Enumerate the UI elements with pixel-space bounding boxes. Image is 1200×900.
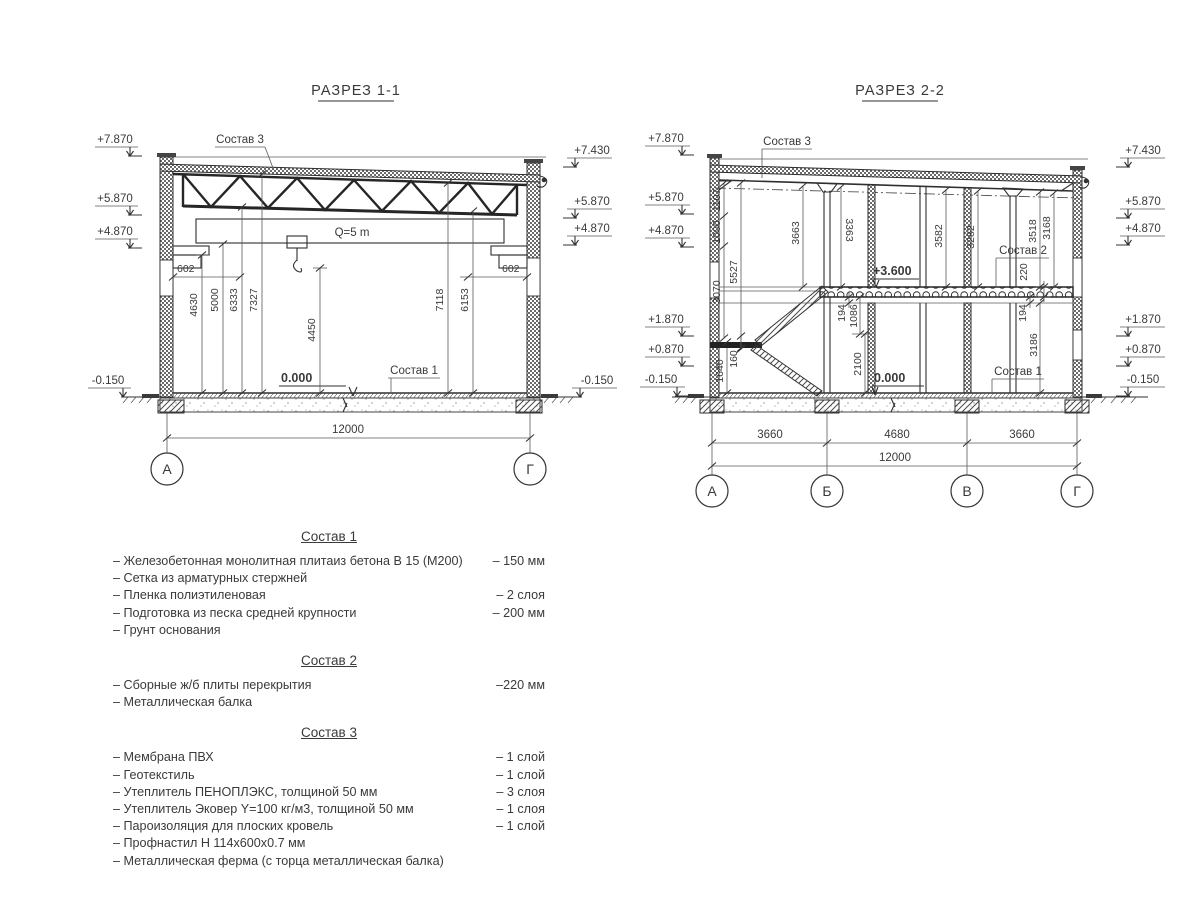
- dim-label: 602: [177, 263, 195, 275]
- elevation-label: -0.150: [92, 375, 125, 387]
- dim-label: 160: [728, 350, 740, 368]
- item-name: – Сборные ж/б плиты перекрытия: [113, 677, 312, 694]
- axis-label: Г: [1073, 483, 1081, 499]
- elevation-label: +1.870: [1125, 314, 1161, 326]
- elevation-label: +7.870: [97, 134, 133, 146]
- dim-label: 194: [836, 304, 848, 322]
- elevation-label: +7.430: [574, 145, 610, 157]
- dim-label: 3186: [1028, 333, 1040, 357]
- item-qty: – 2 слоя: [496, 587, 545, 604]
- span-dim-label: 3660: [1009, 429, 1035, 441]
- composition-item: – Подготовка из песка средней крупности–…: [113, 605, 545, 622]
- axis-label: В: [962, 483, 971, 499]
- item-name: – Подготовка из песка средней крупности: [113, 605, 356, 622]
- composition-3-title: Состав 3: [113, 725, 545, 740]
- dim-ticks: [708, 180, 1081, 470]
- elevation-label: +4.870: [97, 226, 133, 238]
- s2-slab: [719, 287, 1073, 303]
- span-dim-label: 12000: [332, 424, 364, 436]
- composition-1-title: Состав 1: [113, 529, 545, 544]
- item-name: – Пленка полиэтиленовая: [113, 587, 266, 604]
- composition-item: – Геотекстиль– 1 слой: [113, 767, 545, 784]
- s1-602-dims: 602 602: [173, 263, 527, 277]
- dim-label: 3363: [843, 218, 855, 242]
- callout-sostav3: Состав 3: [763, 136, 811, 148]
- s1-crane-beam: Q=5 m: [173, 219, 527, 272]
- elevation-label: +0.870: [1125, 344, 1161, 356]
- elevation-label: +0.870: [648, 344, 684, 356]
- item-name: – Пароизоляция для плоских кровель: [113, 818, 333, 835]
- elevation-label: +7.430: [1125, 145, 1161, 157]
- composition-item: – Сетка из арматурных стержней: [113, 570, 545, 587]
- item-name: – Геотекстиль: [113, 767, 195, 784]
- s2-roof: [710, 165, 1089, 198]
- elevation-label: -0.150: [1127, 374, 1160, 386]
- s2-elevations-right: +7.430 +5.870 +4.870 +1.870 +0.870 -0.15…: [1116, 145, 1165, 396]
- composition-notes: Состав 1 – Железобетонная монолитная пли…: [113, 529, 545, 870]
- callout-sostav3: Состав 3: [216, 134, 264, 146]
- dim-label: 3168: [1041, 216, 1053, 240]
- axis-label: А: [707, 483, 717, 499]
- item-qty: – 1 слой: [496, 749, 545, 766]
- dim-label: 4450: [306, 318, 318, 342]
- item-name: – Утеплитель ПЕНОПЛЭКС, толщиной 50 мм: [113, 784, 377, 801]
- item-qty: – 1 слой: [496, 767, 545, 784]
- axis-label: Г: [526, 461, 534, 477]
- zero-level-label: 0.000: [874, 371, 905, 385]
- item-name: – Профнастил Н 114х600х0.7 мм: [113, 835, 305, 852]
- composition-item: – Металлическая балка: [113, 694, 545, 711]
- item-name: – Мембрана ПВХ: [113, 749, 214, 766]
- axis-label: Б: [822, 483, 831, 499]
- item-name: – Утеплитель Эковер Y=100 кг/м3, толщино…: [113, 801, 414, 818]
- s1-span-dim: 12000 А Г: [151, 413, 546, 485]
- item-name: – Металлическая балка: [113, 694, 252, 711]
- dim-label: 7118: [434, 289, 446, 312]
- zero-level-label: 0.000: [281, 371, 312, 385]
- item-qty: – 3 слоя: [496, 784, 545, 801]
- sections-canvas: РАЗРЕЗ 1-1 Q=5 m: [0, 0, 1200, 520]
- dim-label: 194: [1017, 304, 1029, 322]
- s2-elevations-left: +7.870 +5.870 +4.870 +1.870 +0.870 -0.15…: [640, 133, 694, 396]
- composition-item: – Пленка полиэтиленовая– 2 слоя: [113, 587, 545, 604]
- elevation-label: +5.870: [97, 193, 133, 205]
- item-qty: –220 мм: [496, 677, 545, 694]
- elevation-label: +5.870: [648, 192, 684, 204]
- section-2-2: РАЗРЕЗ 2-2: [640, 83, 1165, 507]
- elevation-label: +5.870: [574, 196, 610, 208]
- drawing-sheet: { "s1": { "title": "РАЗРЕЗ 1-1", "elev_l…: [0, 0, 1200, 900]
- s2-bottom-dims: 3660 4680 3660 12000 А Б В Г: [696, 413, 1093, 507]
- composition-item: – Грунт основания: [113, 622, 545, 639]
- elevation-label: +4.870: [648, 225, 684, 237]
- s1-elevations-left: +7.870 +5.870 +4.870 -0.150: [88, 134, 142, 397]
- composition-item: – Утеплитель Эковер Y=100 кг/м3, толщино…: [113, 801, 545, 818]
- section1-title: РАЗРЕЗ 1-1: [311, 83, 401, 99]
- elevation-label: -0.150: [645, 374, 678, 386]
- elevation-label: +4.870: [574, 223, 610, 235]
- dim-label: 4630: [188, 293, 200, 317]
- span-dim-label: 3660: [757, 429, 783, 441]
- section2-title: РАЗРЕЗ 2-2: [855, 83, 945, 99]
- dim-label: 6153: [459, 288, 471, 312]
- dim-label: 3582: [933, 224, 945, 248]
- dim-label: 2100: [852, 352, 864, 376]
- span-dim-label: 12000: [879, 452, 911, 464]
- composition-item: – Утеплитель ПЕНОПЛЭКС, толщиной 50 мм– …: [113, 784, 545, 801]
- composition-item: – Сборные ж/б плиты перекрытия–220 мм: [113, 677, 545, 694]
- item-qty: – 200 мм: [493, 605, 545, 622]
- dim-label: 5000: [209, 288, 221, 312]
- dim-label: 3518: [1027, 219, 1039, 243]
- elevation-label: +4.870: [1125, 223, 1161, 235]
- s1-elevations-right: +7.430 +5.870 +4.870 -0.150: [563, 145, 617, 397]
- elevation-label: +5.870: [1125, 196, 1161, 208]
- dim-label: 1107: [711, 189, 723, 212]
- callout-sostav1: Состав 1: [994, 366, 1042, 378]
- composition-item: – Мембрана ПВХ– 1 слой: [113, 749, 545, 766]
- item-name: – Железобетонная монолитная плитаиз бето…: [113, 553, 463, 570]
- composition-item: – Пароизоляция для плоских кровель– 1 сл…: [113, 818, 545, 835]
- item-name: – Сетка из арматурных стержней: [113, 570, 307, 587]
- composition-item: – Металлическая ферма (с торца металличе…: [113, 853, 545, 870]
- dim-label: 1640: [714, 359, 726, 383]
- dim-label: 1000: [711, 220, 723, 244]
- s1-floor: [122, 393, 580, 413]
- axis-label: А: [162, 461, 172, 477]
- elevation-label: +1.870: [648, 314, 684, 326]
- composition-item: – Профнастил Н 114х600х0.7 мм: [113, 835, 545, 852]
- dim-label: 3070: [711, 280, 723, 304]
- composition-item: – Железобетонная монолитная плитаиз бето…: [113, 553, 545, 570]
- item-qty: – 150 мм: [493, 553, 545, 570]
- dim-label: 220: [1018, 263, 1030, 281]
- dim-label: 602: [502, 263, 520, 275]
- dim-label: 6333: [228, 288, 240, 312]
- section-1-1: РАЗРЕЗ 1-1 Q=5 m: [88, 83, 617, 485]
- item-name: – Металлическая ферма (с торца металличе…: [113, 853, 444, 870]
- crane-capacity-label: Q=5 m: [335, 227, 370, 239]
- s1-walls: [157, 153, 546, 397]
- level-360-label: +3.600: [873, 264, 912, 278]
- dim-label: 5527: [728, 260, 740, 284]
- item-name: – Грунт основания: [113, 622, 221, 639]
- dim-label: 3282: [965, 225, 977, 249]
- dim-label: 1086: [848, 304, 860, 328]
- item-qty: – 1 слоя: [496, 801, 545, 818]
- elevation-label: +7.870: [648, 133, 684, 145]
- dim-label: 7327: [248, 288, 260, 312]
- callout-sostav1: Состав 1: [390, 365, 438, 377]
- composition-2-title: Состав 2: [113, 653, 545, 668]
- dim-label: 3663: [790, 221, 802, 245]
- span-dim-label: 4680: [884, 429, 910, 441]
- elevation-label: -0.150: [581, 375, 614, 387]
- item-qty: – 1 слой: [496, 818, 545, 835]
